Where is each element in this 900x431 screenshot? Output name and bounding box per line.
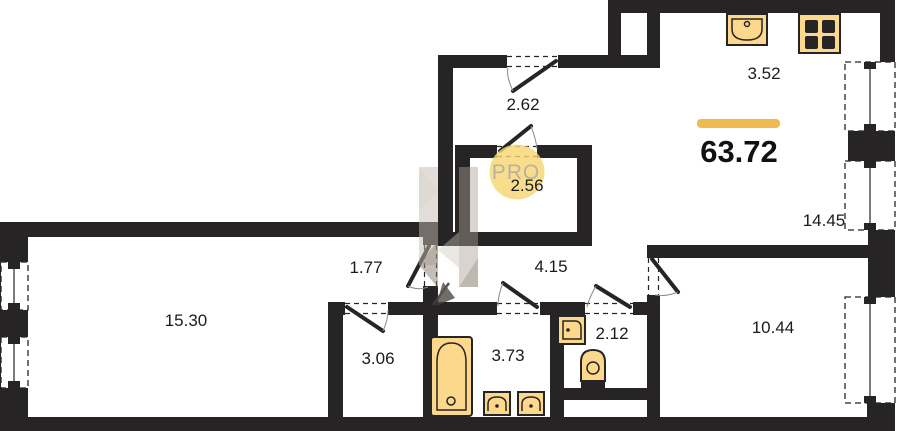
window-left-2 [1, 337, 28, 388]
area-label-storage: 2.56 [510, 176, 543, 195]
stove-icon [799, 14, 840, 53]
sink-icon [518, 392, 544, 415]
area-label-entry-hall: 2.62 [506, 95, 539, 114]
area-label-living-room: 14.45 [803, 211, 846, 230]
area-label-closet: 3.06 [361, 349, 394, 368]
area-label-kitchen-zone: 3.52 [747, 64, 780, 83]
total-area-accent-line [697, 119, 780, 128]
window-left-1 [1, 262, 28, 310]
sink-icon [484, 392, 510, 415]
corner-sink-icon [558, 316, 585, 344]
floor-plan: PRO 63.72 3.52 2.62 2.56 14.45 1.77 4.15… [0, 0, 900, 431]
total-area-label: 63.72 [700, 134, 778, 169]
toilet-icon [581, 350, 605, 392]
area-label-wc: 2.12 [595, 324, 628, 343]
window-right-3 [845, 297, 895, 403]
window-right-1 [845, 62, 895, 131]
area-label-inner-hall: 1.77 [349, 258, 382, 277]
area-label-bedroom-1: 15.30 [165, 311, 208, 330]
area-label-bedroom-2: 10.44 [752, 318, 795, 337]
kitchen-sink-icon [727, 14, 767, 45]
bathtub-icon [431, 337, 472, 416]
area-label-bathroom: 3.73 [491, 346, 524, 365]
floor-plan-svg: PRO 63.72 3.52 2.62 2.56 14.45 1.77 4.15… [0, 0, 900, 431]
area-label-corridor: 4.15 [534, 257, 567, 276]
window-right-2 [845, 161, 895, 230]
